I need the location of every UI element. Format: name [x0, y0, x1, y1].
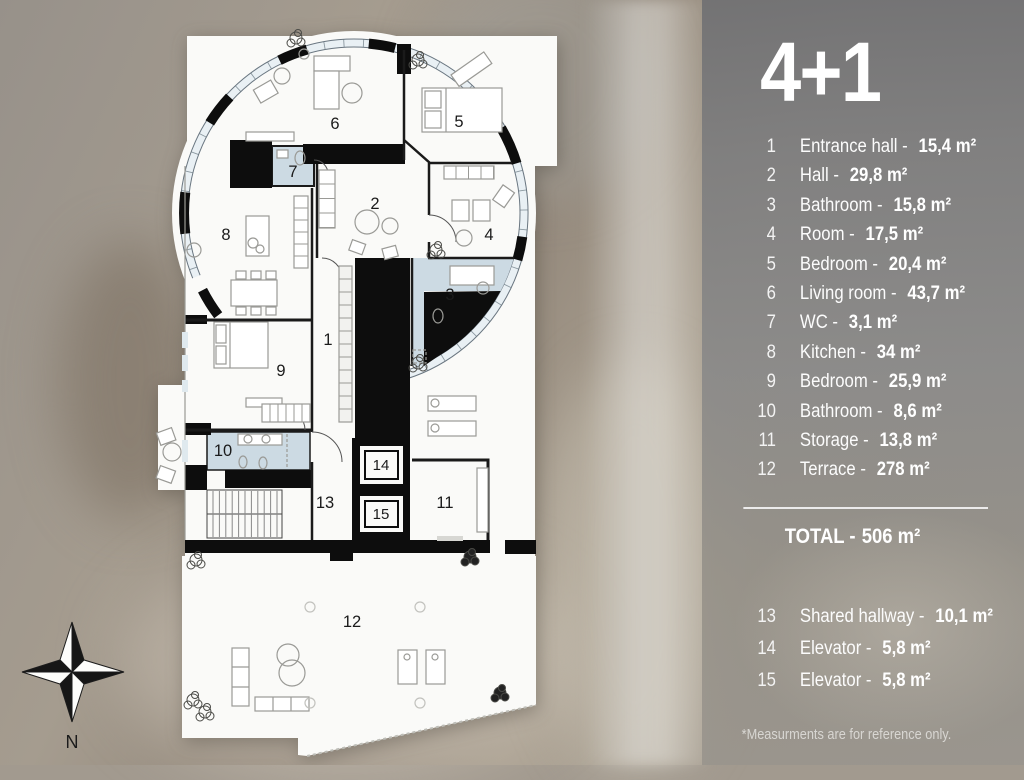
legend-room-name: Elevator -	[800, 670, 872, 691]
legend-room-area: 17,5 m²	[866, 224, 924, 245]
legend-room-name: Bedroom -	[800, 371, 878, 392]
legend-room-row: 7 WC - 3,1 m²	[702, 308, 1024, 337]
legend-room-row: 13 Shared hallway - 10,1 m²	[702, 601, 1024, 633]
legend-room-name: Kitchen -	[800, 342, 866, 363]
legend-room-row: 11 Storage - 13,8 m²	[702, 426, 1024, 455]
legend-room-name: Room -	[800, 224, 855, 245]
legend-room-number: 7	[753, 308, 776, 337]
legend-divider	[743, 507, 988, 509]
compass-rose: N	[22, 622, 124, 752]
plan-room-label-9: 9	[276, 362, 285, 380]
legend-room-list-annex: 13 Shared hallway - 10,1 m² 14 Elevator …	[702, 601, 1024, 698]
legend-room-list-main: 1 Entrance hall - 15,4 m² 2 Hall - 29,8 …	[702, 132, 1024, 485]
legend-room-number: 1	[753, 132, 776, 161]
legend-room-number: 3	[753, 191, 776, 220]
legend-room-area: 3,1 m²	[849, 312, 897, 333]
legend-room-row: 2 Hall - 29,8 m²	[702, 161, 1024, 190]
legend-room-area: 5,8 m²	[882, 638, 930, 659]
plan-room-label-10: 10	[214, 442, 232, 460]
legend-room-area: 15,4 m²	[919, 136, 977, 157]
legend-room-number: 15	[753, 665, 776, 697]
legend-room-area: 15,8 m²	[893, 195, 951, 216]
legend-room-number: 2	[753, 161, 776, 190]
legend-room-area: 20,4 m²	[889, 254, 947, 275]
legend-room-area: 278 m²	[877, 459, 930, 480]
plan-room-label-8: 8	[221, 226, 230, 244]
legend-room-number: 12	[753, 455, 776, 484]
legend-room-row: 5 Bedroom - 20,4 m²	[702, 250, 1024, 279]
legend-footnote: *Measurments are for reference only.	[742, 727, 952, 743]
legend-room-area: 29,8 m²	[850, 165, 908, 186]
plan-room-label-2: 2	[370, 195, 379, 213]
legend-room-row: 6 Living room - 43,7 m²	[702, 279, 1024, 308]
legend-room-number: 10	[753, 397, 776, 426]
legend-room-number: 4	[753, 220, 776, 249]
plan-type-title: 4+1	[760, 26, 1024, 118]
legend-room-area: 5,8 m²	[882, 670, 930, 691]
total-label: TOTAL -	[785, 525, 856, 548]
legend-room-number: 9	[753, 367, 776, 396]
legend-room-number: 11	[753, 426, 776, 455]
legend-room-row: 10 Bathroom - 8,6 m²	[702, 397, 1024, 426]
legend-room-area: 10,1 m²	[935, 606, 993, 627]
plan-room-label-5: 5	[454, 113, 463, 131]
legend-room-number: 13	[753, 601, 776, 633]
legend-room-number: 6	[753, 279, 776, 308]
legend-room-number: 14	[753, 633, 776, 665]
legend-room-area: 8,6 m²	[893, 401, 941, 422]
legend-room-name: Shared hallway -	[800, 606, 925, 627]
legend-room-number: 8	[753, 338, 776, 367]
plan-room-label-12: 12	[343, 613, 361, 631]
plan-room-label-1: 1	[323, 331, 332, 349]
legend-room-row: 12 Terrace - 278 m²	[702, 455, 1024, 484]
legend-room-name: Elevator -	[800, 638, 872, 659]
legend-room-name: WC -	[800, 312, 838, 333]
legend-room-name: Living room -	[800, 283, 897, 304]
legend-room-name: Bathroom -	[800, 195, 883, 216]
legend-room-row: 8 Kitchen - 34 m²	[702, 338, 1024, 367]
plan-room-label-14: 14	[373, 457, 390, 474]
plan-room-label-13: 13	[316, 494, 334, 512]
legend-room-name: Storage -	[800, 430, 869, 451]
plan-room-label-6: 6	[330, 115, 339, 133]
legend-panel: 4+1 1 Entrance hall - 15,4 m² 2 Hall - 2…	[702, 0, 1024, 765]
legend-room-number: 5	[753, 250, 776, 279]
legend-room-area: 34 m²	[877, 342, 921, 363]
legend-room-name: Bedroom -	[800, 254, 878, 275]
legend-room-row: 1 Entrance hall - 15,4 m²	[702, 132, 1024, 161]
plan-room-label-15: 15	[373, 506, 390, 523]
legend-room-row: 15 Elevator - 5,8 m²	[702, 665, 1024, 697]
plan-room-label-7: 7	[288, 163, 297, 181]
legend-room-area: 43,7 m²	[907, 283, 965, 304]
legend-room-area: 25,9 m²	[889, 371, 947, 392]
legend-room-name: Terrace -	[800, 459, 866, 480]
floor-plan-page: { "legend": { "title": "4+1", "total_lab…	[0, 0, 1024, 765]
legend-room-row: 14 Elevator - 5,8 m²	[702, 633, 1024, 665]
legend-room-row: 4 Room - 17,5 m²	[702, 220, 1024, 249]
legend-total: TOTAL -506 m²	[785, 525, 1024, 549]
plan-room-label-4: 4	[484, 226, 493, 244]
legend-room-area: 13,8 m²	[880, 430, 938, 451]
legend-room-row: 3 Bathroom - 15,8 m²	[702, 191, 1024, 220]
compass-north-label: N	[66, 732, 79, 752]
plan-room-label-3: 3	[445, 286, 454, 304]
legend-room-name: Hall -	[800, 165, 839, 186]
plan-silhouette: 1 2 3 4 5 6 7 8 9 10 11 12 13 14 15	[156, 30, 557, 757]
legend-room-name: Entrance hall -	[800, 136, 908, 157]
legend-room-row: 9 Bedroom - 25,9 m²	[702, 367, 1024, 396]
total-area: 506 m²	[862, 525, 921, 548]
legend-room-name: Bathroom -	[800, 401, 883, 422]
plan-room-label-11: 11	[436, 494, 453, 512]
